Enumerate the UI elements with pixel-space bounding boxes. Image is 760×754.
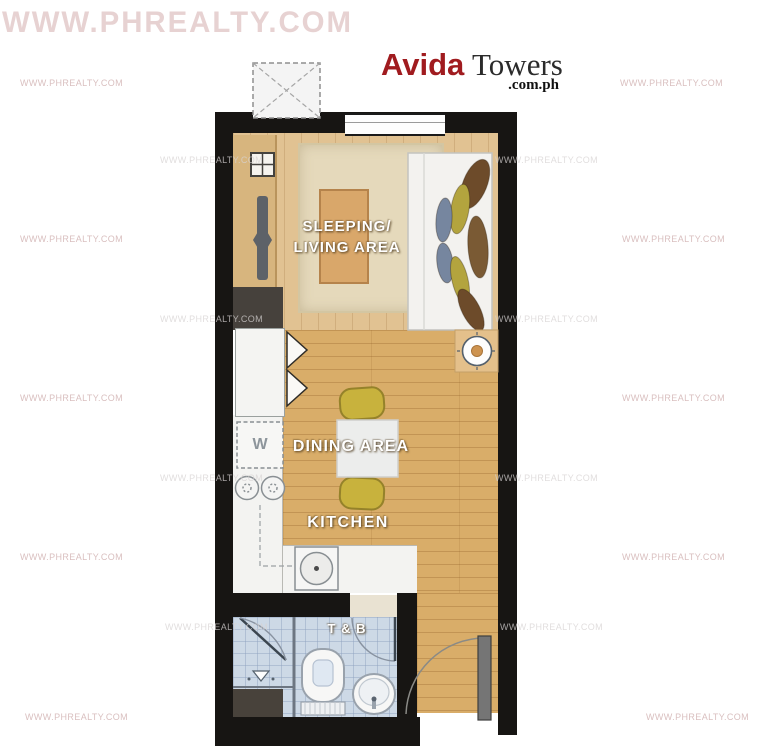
shower-mat	[233, 689, 283, 717]
toilet	[301, 649, 345, 715]
dining-area-label: DINING AREA	[276, 438, 426, 456]
sleeping-label-line2: LIVING AREA	[266, 237, 428, 258]
watermark: WWW.PHREALTY.COM	[165, 622, 268, 632]
watermark: WWW.PHREALTY.COM	[160, 314, 263, 324]
watermark: WWW.PHREALTY.COM	[160, 473, 263, 483]
bath-label: T & B	[307, 621, 387, 636]
floor-plan-overlay	[0, 0, 760, 754]
watermark: WWW.PHREALTY.COM	[495, 473, 598, 483]
watermark: WWW.PHREALTY.COM	[500, 622, 603, 632]
bifold-door	[287, 332, 307, 406]
sleeping-living-label: SLEEPING/ LIVING AREA	[266, 216, 428, 258]
fan-symbol	[455, 330, 498, 372]
washer-label: W	[237, 422, 283, 468]
watermark: WWW.PHREALTY.COM	[495, 155, 598, 165]
dining-chair-bottom	[339, 477, 385, 510]
watermark: WWW.PHREALTY.COM	[495, 314, 598, 324]
kitchen-label: KITCHEN	[288, 514, 408, 532]
ac-ledge	[253, 63, 320, 118]
shower	[233, 617, 294, 717]
sleeping-label-line1: SLEEPING/	[266, 216, 428, 237]
brand-name: Avida	[381, 47, 464, 82]
shower-head-icon	[253, 671, 269, 681]
dining-chair-top	[339, 387, 385, 421]
entry-door	[406, 636, 491, 720]
floor-plan-page: WWW.PHREALTY.COM WWW.PHREALTY.COM WWW.PH…	[0, 0, 760, 754]
watermark: WWW.PHREALTY.COM	[160, 155, 263, 165]
brand-logo: Avida Towers .com.ph	[381, 47, 563, 94]
kitchen-sink	[295, 547, 338, 590]
lavatory-sink	[353, 674, 395, 714]
